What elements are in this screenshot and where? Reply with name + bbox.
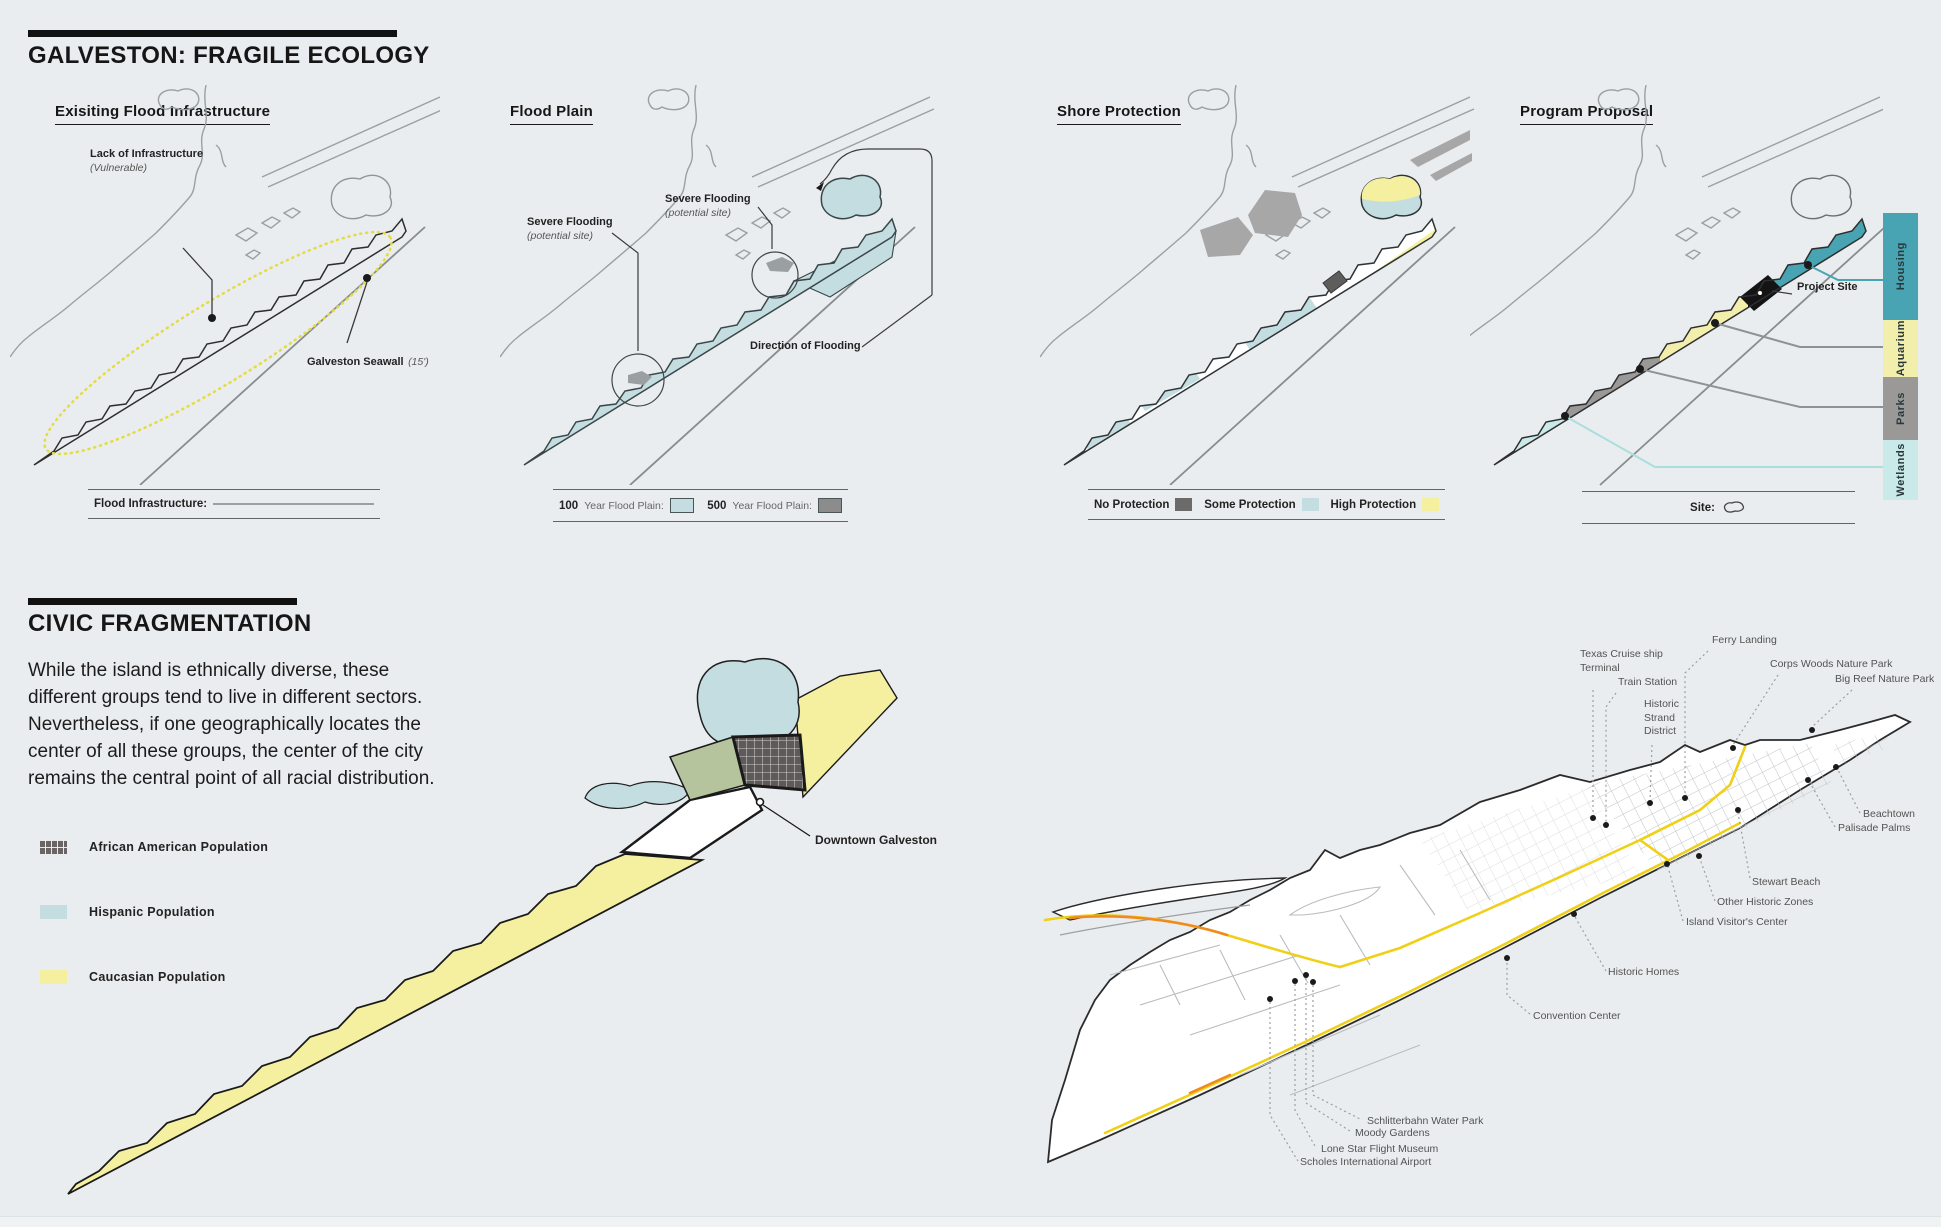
city-map [1040, 615, 1941, 1227]
label-corps-woods: Corps Woods Nature Park [1770, 658, 1892, 672]
downtown-galveston-label: Downtown Galveston [815, 833, 937, 848]
label-lone-star: Lone Star Flight Museum [1321, 1143, 1438, 1157]
poster-board: GALVESTON: FRAGILE ECOLOGY Exisiting Flo… [0, 0, 1941, 1227]
legend-some-protection-swatch [1302, 498, 1319, 511]
label-scholes-airport: Scholes International Airport [1300, 1156, 1431, 1170]
flood-plain-legend: 100 Year Flood Plain: 500 Year Flood Pla… [553, 489, 848, 522]
caucasian-area-east [795, 670, 897, 797]
program-block-parks: Parks [1883, 377, 1918, 440]
label-big-reef: Big Reef Nature Park [1835, 673, 1934, 687]
legend-100yr-num: 100 [559, 500, 578, 512]
shore-protection-map [1040, 85, 1480, 485]
label-strand-district: Historic Strand District [1644, 698, 1679, 739]
flood-infrastructure-map [10, 85, 440, 485]
flood-infrastructure-line-swatch [213, 503, 374, 505]
project-site-label: Project Site [1797, 281, 1858, 295]
severe-flooding-note-west: (potential site) [527, 230, 593, 243]
housing-leader [1808, 265, 1883, 280]
seawall-label-row: Galveston Seawall (15') [307, 352, 429, 370]
ecology-title-bar [28, 30, 397, 37]
label-visitor-center: Island Visitor's Center [1686, 916, 1788, 930]
vulnerable-zone-outline [25, 203, 411, 482]
label-cruise-terminal: Texas Cruise ship Terminal [1580, 648, 1663, 675]
fragmentation-map [50, 540, 950, 1210]
shore-protection-legend: No Protection Some Protection High Prote… [1088, 489, 1445, 520]
lack-infrastructure-label: Lack of Infrastructure [90, 148, 203, 162]
caucasian-area-spit [68, 854, 702, 1194]
legend-500yr-num: 500 [707, 500, 726, 512]
flood-infrastructure-legend: Flood Infrastructure: [88, 489, 380, 519]
site-blob-icon [1721, 500, 1747, 515]
lack-infrastructure-note: (Vulnerable) [90, 162, 147, 175]
site-legend-label: Site: [1690, 502, 1715, 514]
legend-500yr-label: Year Flood Plain: [732, 500, 812, 512]
severe-flooding-note-mid: (potential site) [665, 207, 731, 220]
seawall-label: Galveston Seawall [307, 356, 404, 368]
label-historic-homes: Historic Homes [1608, 966, 1679, 980]
flood-infrastructure-legend-label: Flood Infrastructure: [94, 498, 207, 510]
program-label-housing: Housing [1895, 242, 1907, 290]
program-label-parks: Parks [1895, 392, 1907, 425]
label-moody-gardens: Moody Gardens [1355, 1127, 1430, 1141]
label-stewart-beach: Stewart Beach [1752, 876, 1820, 890]
label-other-historic: Other Historic Zones [1717, 896, 1813, 910]
flood-plain-map [500, 85, 940, 485]
program-proposal-map [1470, 85, 1883, 535]
bottom-strip [0, 1216, 1941, 1227]
seawall-note: (15') [408, 356, 429, 368]
legend-no-protection-label: No Protection [1094, 499, 1169, 511]
severe-flooding-site-circle-mid [752, 252, 798, 298]
legend-some-protection-label: Some Protection [1204, 499, 1295, 511]
program-label-wetlands: Wetlands [1895, 443, 1907, 497]
label-train-station: Train Station [1618, 676, 1677, 690]
label-palisade-palms: Palisade Palms [1838, 822, 1910, 836]
lack-infrastructure-dot [208, 314, 216, 322]
legend-high-protection-swatch [1422, 498, 1439, 511]
legend-500yr-swatch [818, 498, 842, 513]
seawall-dot [363, 274, 371, 282]
program-label-aquarium: Aquarium [1895, 320, 1907, 376]
site-legend: Site: [1582, 491, 1855, 524]
downtown-dot [757, 799, 764, 806]
legend-high-protection-label: High Protection [1331, 499, 1417, 511]
wetlands-leader [1565, 416, 1883, 467]
label-ferry-landing: Ferry Landing [1712, 634, 1777, 648]
severe-flooding-label-mid: Severe Flooding [665, 193, 751, 207]
program-block-wetlands: Wetlands [1883, 440, 1918, 500]
hispanic-area-pelican [697, 659, 799, 746]
legend-100yr-label: Year Flood Plain: [584, 500, 664, 512]
legend-100yr-swatch [670, 498, 694, 513]
program-block-aquarium: Aquarium [1883, 320, 1918, 377]
label-convention-center: Convention Center [1533, 1010, 1621, 1024]
aquarium-leader [1715, 323, 1883, 347]
legend-no-protection-swatch [1175, 498, 1192, 511]
ecology-section-title: GALVESTON: FRAGILE ECOLOGY [28, 42, 430, 70]
direction-of-flooding-label: Direction of Flooding [750, 340, 861, 354]
program-block-housing: Housing [1883, 213, 1918, 320]
downtown-area [733, 735, 805, 790]
parks-leader [1640, 369, 1883, 407]
label-beachtown: Beachtown [1863, 808, 1915, 822]
severe-flooding-label-west: Severe Flooding [527, 216, 613, 230]
hispanic-area-bayou [585, 782, 690, 809]
